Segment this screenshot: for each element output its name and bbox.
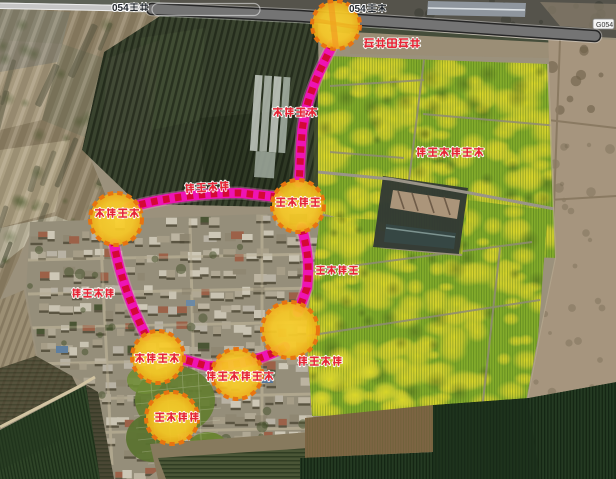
svg-text:054: 054 [349,4,366,15]
svg-text:054: 054 [112,3,129,14]
svg-text:G054: G054 [596,22,613,29]
